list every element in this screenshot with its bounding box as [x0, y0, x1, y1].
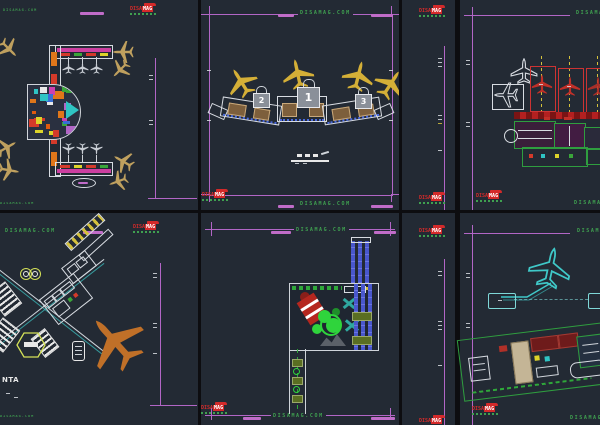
- frame-corner-tick: [391, 194, 399, 195]
- logo-tagline: [476, 200, 502, 202]
- frame-corner-tick: [209, 6, 210, 14]
- frame-dash: [78, 182, 88, 184]
- wall-line: [582, 343, 598, 346]
- apron-outline: [569, 359, 600, 379]
- terminal-red-band: [514, 112, 600, 119]
- border-tick: [438, 365, 442, 366]
- color-block: [74, 53, 82, 56]
- border-tick: [153, 323, 157, 324]
- hub-color-block: [62, 86, 67, 92]
- hub-color-block: [30, 99, 36, 103]
- hexagon-pad: [16, 331, 46, 359]
- red-roof-block: [530, 335, 559, 352]
- road-band: [365, 241, 369, 285]
- panel-gate-terminal-plan: DISAMAG DISAMAG DISAMAG.COM: [402, 213, 600, 425]
- color-block: [73, 292, 79, 298]
- logo-text: DISAMAG: [130, 7, 160, 12]
- hub-connector-wedge: [66, 101, 79, 119]
- hub-color-block: [63, 121, 70, 124]
- panel-landscape-site-plan: DISAMAG.COM: [201, 213, 399, 425]
- logo-text: DISAMAG: [201, 406, 231, 411]
- border-tick: [438, 150, 442, 151]
- logo-text: DISAMAG: [472, 407, 502, 412]
- gate-box: [488, 293, 516, 309]
- frame-dash: [371, 205, 393, 208]
- frame-dash: [80, 12, 104, 15]
- border-tick: [207, 70, 211, 71]
- border-tick: [153, 353, 157, 354]
- color-block: [86, 53, 96, 56]
- airplane-icon: [90, 142, 103, 155]
- watermark-text: DISAMAG.COM: [298, 202, 353, 207]
- color-block: [86, 165, 96, 168]
- hedge-row: [292, 286, 342, 290]
- frame-corner-tick: [391, 194, 392, 202]
- furniture-dot: [541, 154, 545, 158]
- frame-dash: [271, 231, 291, 234]
- logo-text-red: DISA: [419, 8, 431, 14]
- furniture-dot: [544, 356, 550, 362]
- watermark-text: DISAMAG.COM: [271, 414, 326, 419]
- disamag-logo: DISAMAG: [419, 192, 449, 204]
- road-sign-block: [292, 359, 303, 367]
- frame-corner-tick: [201, 14, 209, 15]
- watermark-text: DISAMAG.COM: [3, 9, 37, 13]
- disamag-logo: DISAMAG: [419, 415, 449, 425]
- color-block: [544, 117, 550, 120]
- logo-text-red: DISA: [476, 193, 488, 199]
- gate-box: [588, 293, 600, 309]
- watermark-text: DISAMAG.COM: [294, 228, 349, 233]
- logo-text-box: MAG: [214, 192, 225, 198]
- wall-line: [473, 363, 485, 365]
- sheet-divider: [455, 0, 460, 210]
- color-block: [67, 297, 73, 303]
- logo-text-box: MAG: [484, 406, 495, 412]
- airplane-icon: [62, 142, 75, 155]
- airplane-icon: [0, 156, 22, 184]
- frame-dash: [243, 417, 261, 420]
- border-tick: [207, 120, 211, 121]
- border-tick: [438, 58, 442, 59]
- jet-bridge: [96, 155, 97, 162]
- border-tick: [438, 325, 442, 326]
- wall-line: [518, 138, 552, 139]
- logo-text: DISAMAG: [476, 194, 506, 199]
- floor-plan-cluster: [514, 121, 600, 171]
- border-tick: [438, 62, 442, 63]
- disamag-logo: DISAMAG: [130, 3, 160, 15]
- room-block: [522, 147, 588, 167]
- airplane-icon: [0, 31, 25, 65]
- disamag-logo: DISAMAG: [472, 403, 502, 415]
- furniture-dot: [569, 154, 573, 158]
- roof-block: [282, 103, 297, 117]
- logo-text: DISAMAG: [419, 229, 449, 234]
- logo-tagline: [133, 231, 159, 233]
- sheet-border-line: [155, 58, 156, 198]
- frame-corner-tick: [211, 222, 212, 236]
- room-block: [584, 127, 600, 149]
- border-tick: [438, 115, 442, 116]
- logo-text-box: MAG: [431, 418, 442, 424]
- logo-text-red: DISA: [133, 224, 145, 230]
- jet-bridge: [68, 155, 69, 162]
- border-tick: [149, 120, 153, 121]
- title-stamp-ellipse: [72, 178, 96, 188]
- airplane-icon: [71, 298, 161, 388]
- watermark-text: DISAMAG.COM: [5, 229, 56, 234]
- hub-color-block: [40, 94, 48, 101]
- logo-text-red: DISA: [419, 418, 431, 424]
- stand-mark: [567, 86, 571, 87]
- logo-text-red: DISA: [472, 406, 484, 412]
- logo-text-red: DISA: [130, 6, 142, 12]
- logo-tagline: [202, 199, 228, 201]
- logo-text: DISAMAG: [419, 419, 449, 424]
- border-tick: [438, 275, 442, 276]
- color-block: [499, 345, 508, 352]
- glyph-part: [303, 163, 307, 164]
- airplane-icon: [587, 76, 600, 98]
- logo-text-red: DISA: [202, 192, 214, 198]
- logo-text-box: MAG: [213, 405, 224, 411]
- furniture-dot: [534, 355, 540, 361]
- sheet-border-line: [444, 259, 445, 425]
- color-block: [74, 165, 82, 168]
- logo-text-box: MAG: [431, 228, 442, 234]
- color-block: [57, 48, 111, 52]
- border-tick: [466, 323, 470, 324]
- border-tick: [466, 126, 470, 127]
- concourse-arm-top: [55, 45, 113, 59]
- logo-text: DISAMAG: [419, 196, 449, 201]
- sheet-border-line: [464, 233, 570, 234]
- frame-dash: [278, 14, 294, 17]
- airplane-icon: [531, 74, 553, 96]
- hub-color-block: [36, 117, 42, 124]
- border-tick: [153, 327, 157, 328]
- disamag-logo: DISAMAG: [419, 225, 449, 237]
- border-tick: [153, 273, 157, 274]
- gate-number-box: 1: [297, 87, 320, 108]
- wall-line: [583, 351, 599, 354]
- wall-line: [569, 126, 570, 146]
- border-tick: [438, 321, 442, 322]
- roundabout-circle: [29, 268, 41, 280]
- color-block: [100, 53, 108, 56]
- logo-text-box: MAG: [431, 195, 442, 201]
- plan-mark: [6, 393, 10, 394]
- color-block: [60, 53, 70, 56]
- disamag-logo: DISAMAG: [419, 5, 449, 17]
- color-block: [57, 169, 111, 173]
- airplane-icon: [90, 62, 103, 75]
- stand-mark: [539, 84, 543, 85]
- sheet-divider: [455, 213, 460, 425]
- glyph-part: [297, 154, 302, 157]
- hub-color-block: [32, 111, 36, 114]
- color-block: [60, 165, 70, 168]
- frame-dash: [371, 14, 393, 17]
- tree-ring: [320, 314, 342, 336]
- logo-text: DISAMAG: [419, 9, 449, 14]
- watermark-text: DISAMAG.COM: [570, 416, 600, 421]
- hub-color-block: [46, 124, 50, 129]
- panel-aircraft-stands-plan: DISAMAG DISAMAG DISAMAG.COM: [402, 0, 600, 210]
- border-tick: [466, 122, 470, 123]
- frame-dash: [371, 417, 395, 420]
- logo-tagline: [130, 13, 156, 15]
- logo-tagline: [201, 412, 227, 414]
- road-label: [351, 237, 371, 243]
- tree-ring: [293, 386, 300, 393]
- logo-text-red: DISA: [419, 228, 431, 234]
- border-tick: [466, 64, 470, 65]
- color-block: [51, 52, 57, 66]
- border-tick: [438, 123, 442, 124]
- cad-collage: DISAMAG.COM DISAMAG: [0, 0, 600, 425]
- logo-text: DISAMAG: [202, 193, 232, 198]
- wall-line: [474, 369, 486, 371]
- concourse-arm-bottom: [55, 162, 113, 176]
- gate-link-line: [514, 299, 588, 300]
- watermark-text: DISAMAG.COM: [298, 11, 353, 16]
- sheet-border-line: [150, 405, 197, 406]
- border-tick: [438, 66, 442, 67]
- glyph-part: [295, 163, 299, 164]
- watermark-text: DISAMAG.COM: [576, 11, 600, 16]
- jet-bridge: [82, 155, 83, 162]
- airplane-icon: [559, 76, 581, 98]
- glyph-part: [305, 154, 310, 157]
- watermark-text: DISAMAG.COM: [574, 201, 600, 206]
- watermark-text: DISAMAG.COM: [577, 229, 600, 234]
- airplane-icon: [76, 142, 89, 155]
- jet-bridge-hook: [256, 86, 267, 93]
- airplane-icon: [76, 62, 89, 75]
- round-pod: [504, 129, 518, 143]
- tan-hall-block: [510, 340, 533, 384]
- access-road: [289, 349, 306, 415]
- plan-mark: [14, 397, 18, 398]
- road-band: [358, 241, 362, 285]
- sheet-border-line: [464, 15, 570, 16]
- aircraft-side-glyph: [291, 152, 329, 162]
- logo-tagline: [419, 235, 445, 237]
- glyph-part: [321, 151, 329, 155]
- border-tick: [438, 119, 442, 120]
- border-tick: [438, 271, 442, 272]
- sheet-border-line: [148, 198, 197, 199]
- terminal-building-cluster: [39, 273, 93, 325]
- gate-number: 2: [259, 96, 265, 105]
- jet-bridge-hook: [303, 79, 315, 87]
- panel-terminal-e-plan: DISAMAG.COM DISAMAG: [0, 0, 198, 210]
- furniture-dot: [529, 154, 533, 158]
- border-tick: [466, 60, 470, 61]
- road-sign-block: [352, 336, 372, 345]
- room-block: [554, 123, 586, 149]
- panel-concourse-gates-plan: DISAMAG.COM 2 1 3: [201, 0, 399, 210]
- airplane-icon: [62, 62, 75, 75]
- roundabout-inner: [32, 271, 38, 277]
- watermark-text: DISAMAG.COM: [0, 415, 56, 419]
- gate-number: 1: [305, 91, 313, 104]
- hub-color-block: [58, 111, 64, 118]
- hub-color-block: [35, 130, 43, 133]
- wall-line: [518, 130, 552, 131]
- sheet-border-line: [472, 7, 473, 210]
- sheet-border-line: [160, 263, 161, 405]
- disamag-logo: DISAMAG: [133, 221, 163, 233]
- logo-tagline: [419, 15, 445, 17]
- gate-number: 3: [361, 97, 367, 106]
- room-block: [536, 365, 559, 378]
- gate-mark: [498, 300, 502, 301]
- plan-caption: NTA: [2, 376, 19, 384]
- gate-number-box: 3: [355, 94, 372, 109]
- hub-color-block: [53, 130, 59, 137]
- glyph-part: [313, 154, 318, 157]
- logo-tagline: [472, 413, 498, 415]
- sheet-border-line: [444, 46, 445, 210]
- logo-tagline: [419, 202, 445, 204]
- apron-light-dots: [280, 119, 324, 121]
- jet-bridge-hook: [358, 87, 369, 94]
- hub-color-block: [49, 87, 55, 91]
- logo-text-box: MAG: [488, 193, 499, 199]
- color-block: [564, 117, 572, 120]
- border-tick: [438, 329, 442, 330]
- disamag-logo: DISAMAG: [201, 402, 231, 414]
- road-sign-block: [292, 377, 303, 385]
- tree-ring: [293, 368, 300, 375]
- furniture-dot: [555, 154, 559, 158]
- panel-airside-site-plan: DISAMAG.COM DISAMAG: [0, 213, 198, 425]
- border-tick: [149, 75, 153, 76]
- color-block: [100, 165, 108, 168]
- frame-dash: [278, 205, 294, 208]
- border-tick: [149, 79, 153, 80]
- logo-text-red: DISA: [201, 405, 213, 411]
- border-tick: [389, 120, 393, 121]
- hub-color-block: [49, 131, 53, 135]
- logo-text-box: MAG: [142, 6, 153, 12]
- room-block: [514, 121, 556, 149]
- logo-text-box: MAG: [145, 224, 156, 230]
- border-tick: [149, 124, 153, 125]
- collage-grid: DISAMAG.COM DISAMAG: [0, 0, 600, 425]
- border-tick: [153, 277, 157, 278]
- road-band: [351, 241, 355, 285]
- road-sign-block: [352, 312, 372, 321]
- gate-number-box: 2: [253, 93, 270, 108]
- disamag-logo: DISAMAG: [476, 190, 506, 202]
- color-block: [51, 74, 57, 84]
- hub-color-block: [40, 87, 47, 93]
- room-block: [586, 149, 600, 165]
- border-tick: [466, 273, 470, 274]
- room-block: [468, 356, 491, 382]
- frame-corner-tick: [391, 6, 392, 14]
- border-tick: [466, 327, 470, 328]
- hub-color-block: [34, 89, 38, 94]
- site-plan-block: [289, 283, 379, 351]
- border-tick: [466, 277, 470, 278]
- road-sign-block: [292, 395, 303, 403]
- wall-line: [75, 354, 82, 355]
- hub-color-block: [66, 90, 76, 93]
- hub-color-block: [66, 126, 77, 134]
- disamag-logo: DISAMAG: [202, 189, 232, 201]
- frame-dash: [374, 231, 396, 234]
- logo-text-box: MAG: [431, 8, 442, 14]
- logo-text: DISAMAG: [133, 225, 163, 230]
- watermark-text: DISAMAG.COM: [0, 202, 60, 206]
- logo-text-red: DISA: [419, 195, 431, 201]
